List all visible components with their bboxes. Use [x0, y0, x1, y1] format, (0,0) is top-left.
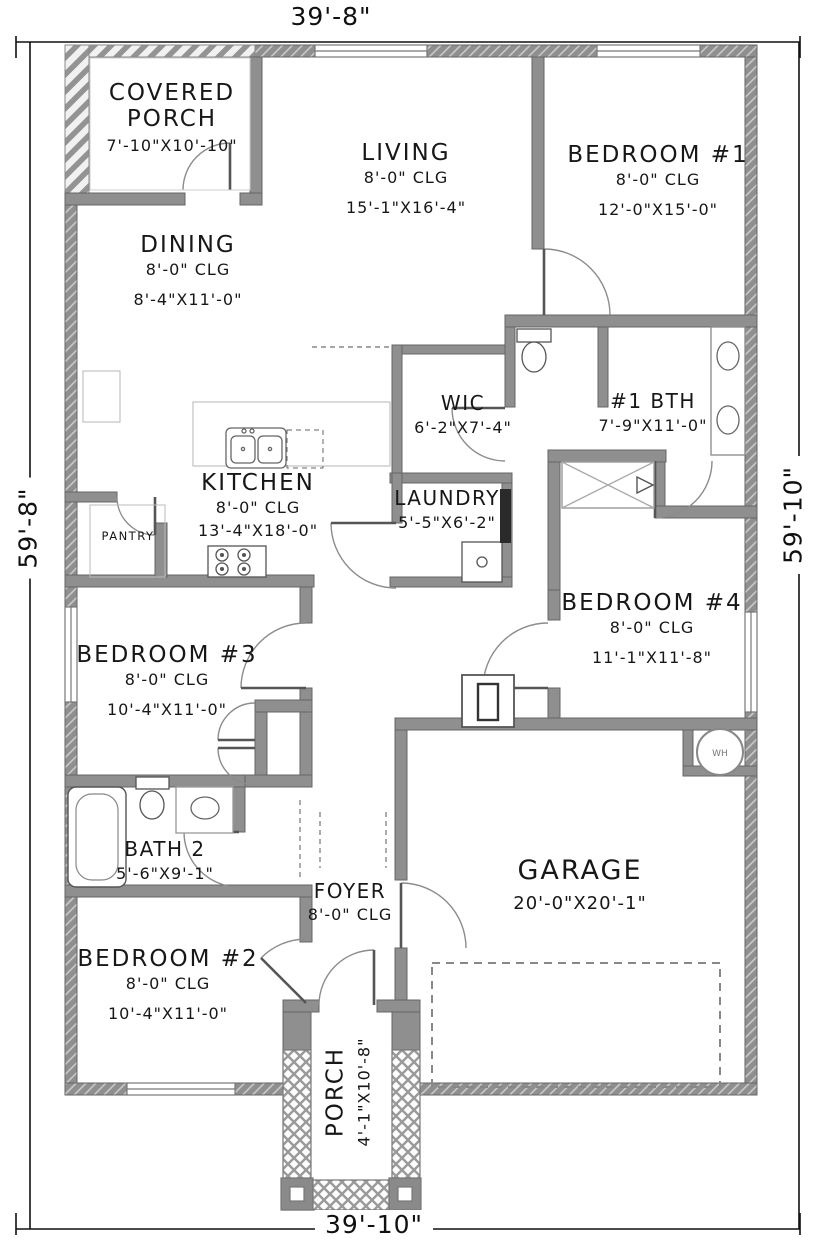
room-size: 5'-5"X6'-2"	[394, 514, 500, 532]
room-name: FOYER	[308, 880, 392, 903]
room-label-garage: GARAGE 20'-0"X20'-1"	[513, 855, 647, 915]
room-name: PORCH	[323, 1038, 351, 1147]
room-size: 10'-4"X11'-0"	[76, 701, 257, 719]
room-size: 10'-4"X11'-0"	[77, 1005, 258, 1023]
room-name: BEDROOM #2	[77, 946, 258, 972]
room-label-bath-2: BATH 2 5'-6"X9'-1"	[116, 838, 214, 883]
room-size: 11'-1"X11'-8"	[561, 649, 742, 667]
dimension-left: 59'-8"	[14, 477, 43, 578]
laundry-counter	[500, 489, 511, 543]
garage-door-outline	[432, 963, 720, 1087]
room-label-laundry: LAUNDRY 5'-5"X6'-2"	[394, 487, 500, 532]
refrigerator	[83, 371, 120, 422]
room-ceiling: 8'-0" CLG	[198, 499, 318, 517]
room-label-wic: WIC 6'-2"X7'-4"	[414, 392, 512, 437]
room-ceiling: 8'-0" CLG	[77, 975, 258, 993]
room-name: DINING	[134, 232, 243, 258]
room-label-bedroom-4: BEDROOM #4 8'-0" CLG 11'-1"X11'-8"	[561, 590, 742, 667]
floor-plan: WH COVERED PORCH 7'-10"X10'-10" LIVING 8…	[0, 0, 821, 1250]
room-name: BEDROOM #4	[561, 590, 742, 616]
bath1-double-vanity	[711, 327, 745, 455]
dimension-bottom: 39'-10"	[315, 1210, 433, 1239]
room-label-covered-porch: COVERED PORCH 7'-10"X10'-10"	[72, 80, 272, 155]
hvac-unit	[462, 675, 514, 727]
room-size: 7'-10"X10'-10"	[72, 137, 272, 155]
room-label-bedroom-3: BEDROOM #3 8'-0" CLG 10'-4"X11'-0"	[76, 642, 257, 719]
attic-access-box	[562, 462, 654, 508]
room-name: BEDROOM #1	[567, 142, 748, 168]
room-name: LIVING	[346, 140, 466, 166]
room-label-dining: DINING 8'-0" CLG 8'-4"X11'-0"	[134, 232, 243, 309]
room-size: 13'-4"X18'-0"	[198, 522, 318, 540]
dimension-top: 39'-8"	[280, 2, 381, 31]
room-name: GARAGE	[513, 855, 647, 886]
kitchen-island	[193, 402, 390, 466]
room-size: 12'-0"X15'-0"	[567, 201, 748, 219]
room-name: BEDROOM #3	[76, 642, 257, 668]
bath2-toilet	[136, 777, 169, 819]
room-label-porch: PORCH 4'-1"X10'-8"	[323, 1038, 374, 1147]
kitchen-sink	[226, 428, 286, 468]
room-label-kitchen: KITCHEN 8'-0" CLG 13'-4"X18'-0"	[198, 470, 318, 540]
room-size: 15'-1"X16'-4"	[346, 199, 466, 217]
room-name: KITCHEN	[198, 470, 318, 496]
water-heater-label: WH	[712, 749, 728, 759]
room-label-bath-1: #1 BTH 7'-9"X11'-0"	[599, 390, 708, 435]
range-stove	[208, 546, 266, 577]
room-size: 7'-9"X11'-0"	[599, 417, 708, 435]
room-size: 6'-2"X7'-4"	[414, 419, 512, 437]
room-ceiling: 8'-0" CLG	[346, 169, 466, 187]
room-size: 20'-0"X20'-1"	[513, 894, 647, 915]
room-ceiling: 8'-0" CLG	[134, 261, 243, 279]
room-ceiling: 8'-0" CLG	[76, 671, 257, 689]
room-name: PANTRY	[102, 530, 155, 543]
room-ceiling: 8'-0" CLG	[308, 906, 392, 924]
room-label-living: LIVING 8'-0" CLG 15'-1"X16'-4"	[346, 140, 466, 217]
room-ceiling: 8'-0" CLG	[567, 171, 748, 189]
room-name: BATH 2	[116, 838, 214, 861]
dimension-right: 59'-10"	[779, 456, 808, 574]
bath2-vanity	[176, 787, 233, 833]
room-label-pantry: PANTRY	[102, 530, 155, 543]
room-name: #1 BTH	[599, 390, 708, 413]
room-size: 5'-6"X9'-1"	[116, 865, 214, 883]
room-name: WIC	[414, 392, 512, 415]
room-size: 8'-4"X11'-0"	[134, 291, 243, 309]
room-label-bedroom-1: BEDROOM #1 8'-0" CLG 12'-0"X15'-0"	[567, 142, 748, 219]
room-size: 4'-1"X10'-8"	[354, 1038, 373, 1147]
toilet-hall-bath	[517, 329, 551, 372]
room-ceiling: 8'-0" CLG	[561, 619, 742, 637]
room-label-bedroom-2: BEDROOM #2 8'-0" CLG 10'-4"X11'-0"	[77, 946, 258, 1023]
room-label-foyer: FOYER 8'-0" CLG	[308, 880, 392, 924]
room-name: LAUNDRY	[394, 487, 500, 510]
laundry-tub	[462, 542, 502, 582]
room-name: COVERED PORCH	[72, 80, 272, 133]
